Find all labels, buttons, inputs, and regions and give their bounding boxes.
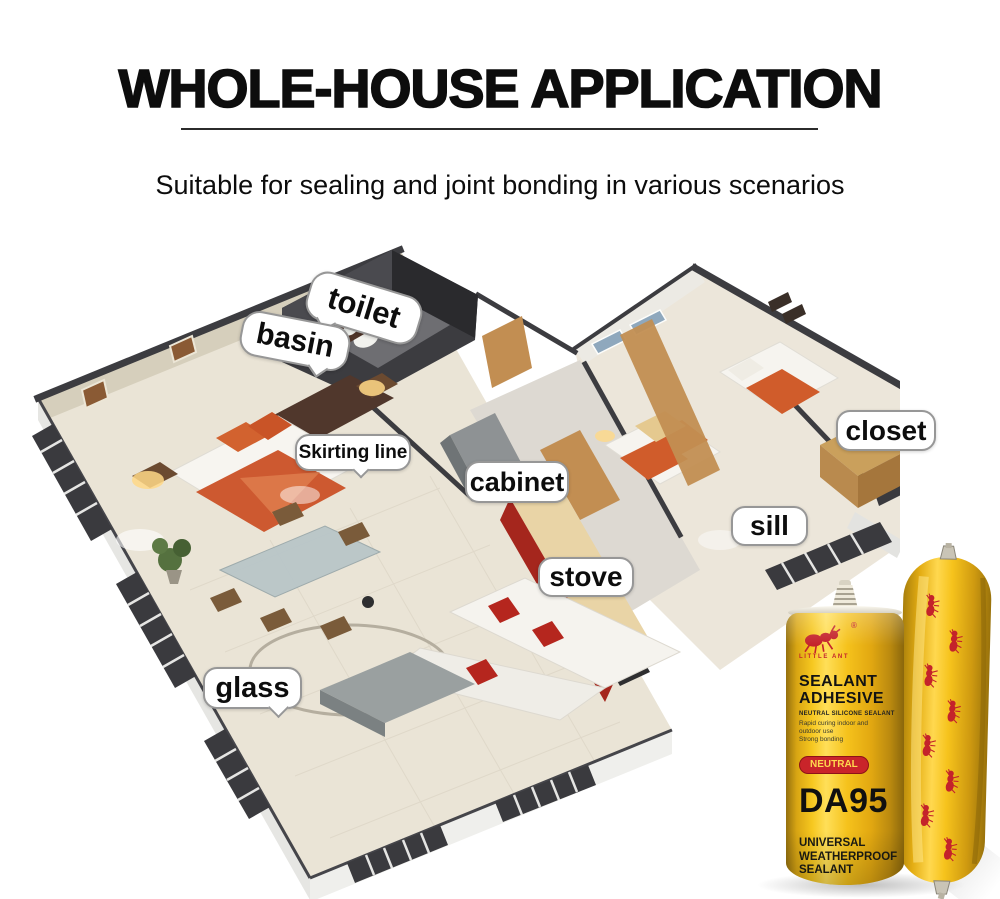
cartridge-label: ® LITTLE ANT SEALANT ADHESIVE NEUTRAL SI…	[786, 613, 904, 885]
sausage-body	[895, 543, 992, 899]
feature-line: outdoor use	[799, 728, 904, 736]
label-stove: stove	[538, 557, 634, 597]
title-divider	[181, 128, 818, 130]
ant-logo-icon: ®	[799, 623, 869, 653]
label-sill-text: sill	[750, 510, 789, 542]
page-title: WHOLE-HOUSE APPLICATION	[0, 60, 1000, 118]
product-name: SEALANT ADHESIVE	[799, 673, 904, 707]
product-name-line1: SEALANT	[799, 673, 904, 690]
page-subtitle: Suitable for sealing and joint bonding i…	[0, 170, 1000, 201]
feature-line: Strong bonding	[799, 736, 904, 744]
label-sill: sill	[731, 506, 808, 546]
label-skirting-text: Skirting line	[299, 442, 408, 464]
model-number: DA95	[799, 782, 904, 821]
brand-name: LITTLE ANT	[799, 654, 904, 660]
feature-line: Rapid curing indoor and	[799, 720, 904, 728]
label-cabinet: cabinet	[465, 461, 569, 503]
page: WHOLE-HOUSE APPLICATION Suitable for sea…	[0, 0, 1000, 899]
category-line: WEATHERPROOF	[799, 851, 904, 865]
label-glass: glass	[203, 667, 302, 709]
label-skirting-line: Skirting line	[295, 434, 411, 471]
product-name-line2: ADHESIVE	[799, 690, 904, 707]
product-type: NEUTRAL SILICONE SEALANT	[799, 711, 904, 717]
label-cabinet-text: cabinet	[470, 467, 565, 498]
category-line: SEALANT	[799, 864, 904, 878]
category-line: UNIVERSAL	[799, 837, 904, 851]
product-category: UNIVERSAL WEATHERPROOF SEALANT	[799, 837, 904, 878]
floorplan-illustration	[20, 240, 900, 899]
label-stove-text: stove	[549, 561, 622, 593]
label-basin-text: basin	[253, 317, 336, 365]
registered-trademark-icon: ®	[851, 621, 857, 630]
label-closet: closet	[836, 410, 936, 451]
product-features: Rapid curing indoor and outdoor use Stro…	[799, 720, 904, 744]
label-closet-text: closet	[846, 415, 927, 447]
sealant-cartridge: ® LITTLE ANT SEALANT ADHESIVE NEUTRAL SI…	[786, 585, 906, 890]
neutral-badge: NEUTRAL	[799, 756, 869, 774]
